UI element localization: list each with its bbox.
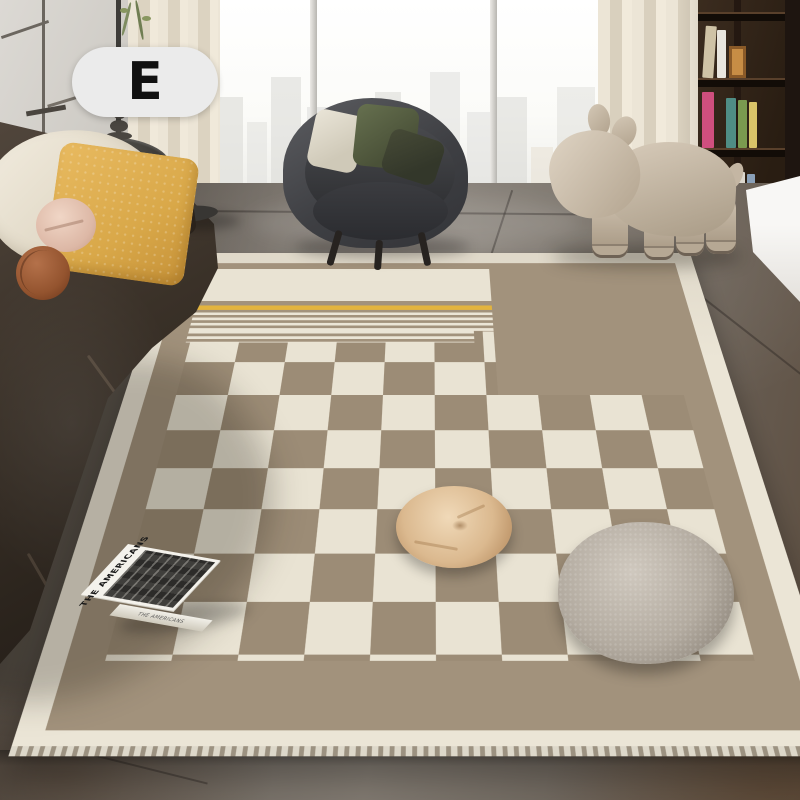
cushion-crease [414,540,458,551]
cushion-dimple [452,520,468,531]
floor-cushion-gray [558,522,734,664]
rug-taupe-block [489,269,684,395]
pony-hoof [592,244,628,258]
badge-letter: E [127,56,163,108]
armchair-seat-cushion [313,182,448,240]
pony-stool [548,104,743,272]
pony-hoof [644,246,674,260]
floor-cushion-beige [396,486,512,568]
living-room-photo: E THE AMERICANS THE A [0,0,800,800]
pillow-crease [44,219,84,232]
pillow-pink [36,198,96,252]
rug-stripe-group [186,331,475,343]
plant-leaf [142,16,151,21]
skyline-building [497,97,527,192]
book-spine-title: THE AMERICANS [136,611,187,624]
book-spine [717,30,726,78]
skyline-building [247,122,267,192]
shelf-board [698,78,785,87]
shelf-board [698,12,785,21]
book-spine [702,26,717,79]
rug-top-panel [197,269,491,301]
candle-lamp-knob [110,120,128,132]
rug-serged-edge [8,746,800,756]
skyline-building [217,97,243,192]
pony-hoof [676,242,704,256]
plant-leaf [120,8,128,13]
armchair [283,90,473,262]
pillow-rust-ball [16,246,70,300]
label-badge: E [72,47,218,117]
photo-book: THE AMERICANS THE AMERICANS [128,540,258,630]
pony-hoof [706,240,736,254]
cushion-crease [457,504,486,519]
window-mullion [490,0,497,190]
picture-frame [729,46,746,78]
book-spine [749,102,757,148]
